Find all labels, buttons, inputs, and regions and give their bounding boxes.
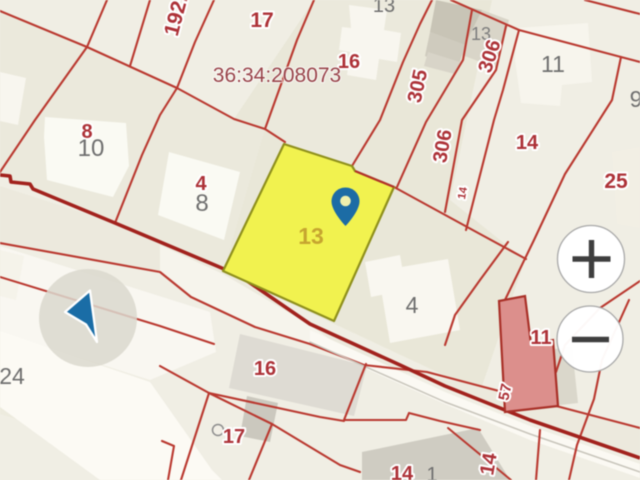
svg-text:11: 11 bbox=[530, 327, 551, 349]
svg-text:16: 16 bbox=[254, 358, 276, 380]
svg-text:17: 17 bbox=[250, 9, 273, 32]
svg-text:11: 11 bbox=[541, 51, 565, 77]
svg-text:13: 13 bbox=[373, 0, 395, 17]
svg-text:17: 17 bbox=[223, 426, 245, 448]
svg-text:14: 14 bbox=[391, 463, 414, 480]
svg-text:13: 13 bbox=[298, 223, 324, 249]
svg-text:1: 1 bbox=[426, 464, 437, 480]
svg-text:24: 24 bbox=[0, 363, 25, 389]
svg-text:8: 8 bbox=[195, 190, 208, 217]
svg-text:25: 25 bbox=[604, 170, 628, 193]
svg-text:57: 57 bbox=[495, 382, 515, 402]
svg-text:14: 14 bbox=[516, 132, 539, 154]
svg-text:4: 4 bbox=[406, 292, 419, 318]
svg-text:10: 10 bbox=[78, 135, 105, 162]
svg-text:36:34:208073: 36:34:208073 bbox=[213, 64, 341, 87]
svg-text:9: 9 bbox=[630, 86, 640, 112]
